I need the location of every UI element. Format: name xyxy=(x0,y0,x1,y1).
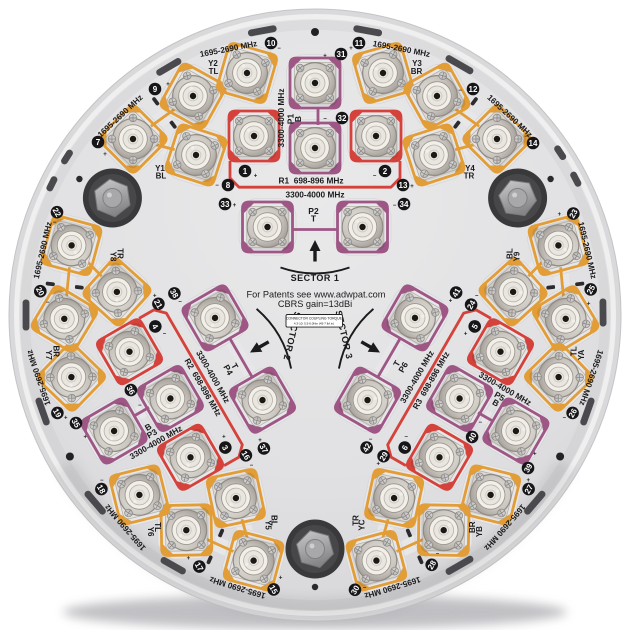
svg-text:+: + xyxy=(526,478,530,484)
svg-text:−: − xyxy=(458,88,462,94)
svg-text:+: + xyxy=(323,54,327,60)
svg-text:31: 31 xyxy=(337,50,346,59)
svg-text:32: 32 xyxy=(338,114,347,123)
svg-text:+: + xyxy=(166,82,170,88)
svg-text:+: + xyxy=(410,184,414,190)
svg-text:−: − xyxy=(323,117,327,123)
svg-text:−: − xyxy=(404,435,408,441)
svg-text:−: − xyxy=(100,478,104,484)
svg-text:12: 12 xyxy=(469,85,478,94)
svg-text:+: + xyxy=(258,438,262,444)
svg-text:+: + xyxy=(254,174,258,180)
svg-text:13: 13 xyxy=(399,181,408,190)
svg-text:−: − xyxy=(163,331,167,337)
svg-text:BR: BR xyxy=(468,521,477,533)
svg-text:BL: BL xyxy=(270,515,279,526)
svg-text:14: 14 xyxy=(529,139,538,148)
svg-text:TL: TL xyxy=(209,67,219,76)
svg-text:+: + xyxy=(449,299,453,305)
svg-text:+: + xyxy=(349,46,353,52)
svg-text:1: 1 xyxy=(243,167,248,176)
svg-text:+: + xyxy=(64,416,68,422)
svg-text:7: 7 xyxy=(96,138,101,147)
svg-text:BR: BR xyxy=(51,346,60,358)
svg-text:−: − xyxy=(178,299,182,305)
svg-text:+: + xyxy=(222,435,226,441)
svg-text:+: + xyxy=(187,556,191,562)
svg-text:TL: TL xyxy=(153,522,162,532)
svg-text:−: − xyxy=(46,300,50,306)
svg-text:−: − xyxy=(393,203,397,209)
svg-text:BL: BL xyxy=(505,248,514,259)
svg-text:−: − xyxy=(277,46,281,52)
svg-text:−: − xyxy=(363,585,367,591)
svg-text:TL: TL xyxy=(570,346,579,356)
svg-text:CBRS gain=13dBi: CBRS gain=13dBi xyxy=(278,299,352,309)
svg-text:−: − xyxy=(436,551,440,557)
svg-text:+: + xyxy=(376,462,380,468)
svg-text:10: 10 xyxy=(267,39,276,48)
svg-text:+: + xyxy=(233,203,237,209)
svg-text:+: + xyxy=(558,212,562,218)
svg-text:−: − xyxy=(478,420,482,426)
svg-text:TR: TR xyxy=(116,248,125,259)
svg-text:TR: TR xyxy=(464,172,475,181)
svg-text:−: − xyxy=(215,183,219,189)
svg-text:CONNECTOR COUPLING TORQUE: CONNECTOR COUPLING TORQUE xyxy=(286,317,343,321)
svg-text:−: − xyxy=(562,416,566,422)
svg-text:−: − xyxy=(369,437,373,443)
svg-text:2: 2 xyxy=(383,167,388,176)
svg-text:BL: BL xyxy=(156,172,167,181)
svg-text:+: + xyxy=(464,331,468,337)
svg-text:−: − xyxy=(475,293,479,299)
svg-text:11: 11 xyxy=(355,39,364,48)
svg-text:SECTOR 1: SECTOR 1 xyxy=(291,273,340,283)
svg-text:+: + xyxy=(84,434,88,440)
svg-text:+: + xyxy=(103,152,107,158)
svg-text:+: + xyxy=(587,301,591,307)
svg-text:4.3-10: 5.5-6.0Nm (45-7 lbf in: 4.3-10: 5.5-6.0Nm (45-7 lbf in) xyxy=(294,322,334,326)
svg-text:3300-4000 MHz: 3300-4000 MHz xyxy=(276,88,286,147)
svg-text:3300-4000 MHz: 3300-4000 MHz xyxy=(285,190,344,200)
svg-text:B: B xyxy=(293,116,303,122)
svg-text:BR: BR xyxy=(411,67,423,76)
svg-text:9: 9 xyxy=(153,85,158,94)
svg-text:TR: TR xyxy=(351,515,360,526)
svg-text:+: + xyxy=(279,576,283,582)
svg-text:34: 34 xyxy=(400,200,409,209)
svg-text:+: + xyxy=(153,294,157,300)
svg-text:−: − xyxy=(138,403,142,409)
svg-text:8: 8 xyxy=(226,181,231,190)
svg-text:R1 698-896 MHz: R1 698-896 MHz xyxy=(278,176,343,186)
svg-text:33: 33 xyxy=(221,200,230,209)
svg-text:−: − xyxy=(373,174,377,180)
svg-text:T: T xyxy=(311,214,317,224)
svg-text:+: + xyxy=(533,452,537,458)
svg-text:−: − xyxy=(250,463,254,469)
